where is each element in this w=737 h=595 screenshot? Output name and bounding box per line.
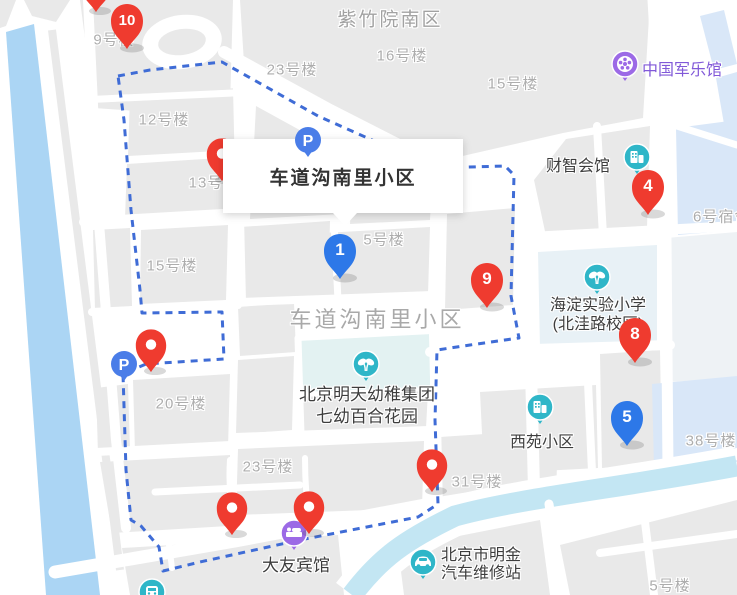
poi-label-hotel[interactable]: 大友宾馆 [262,551,330,576]
area-label: 38号楼 [686,430,737,451]
area-label: 15号楼 [147,255,198,276]
marker-5[interactable]: 5 [605,390,649,448]
bus-icon[interactable] [138,578,166,595]
info-window[interactable]: 车道沟南里小区 [223,139,463,213]
parking-icon[interactable]: P [294,119,322,151]
marker-1[interactable]: 1 [318,223,362,281]
poi-label-line: 北京市明金 [441,547,521,565]
marker-8[interactable]: 8 [613,307,657,365]
poi-label-line: 汽车维修站 [441,565,521,583]
poi-label-line: 七幼百合花园 [299,406,435,428]
poi-label-music-hall[interactable]: 中国军乐馆 [642,56,722,80]
area-label: 5号楼 [363,229,404,250]
red-pin[interactable] [210,479,254,537]
svg-text:1: 1 [335,240,344,259]
area-label: 车道沟南里小区 [289,302,464,334]
area-label: 16号楼 [377,45,428,66]
map-canvas[interactable]: 紫竹院南区 23号楼 16号楼 15号楼 9号楼 12号楼 13号楼 15号楼 … [0,0,737,595]
parking-icon[interactable]: P [110,343,138,375]
car-repair-icon[interactable] [409,548,437,582]
right-mid-block [666,232,737,382]
area-label: 20号楼 [156,393,207,414]
marker-10[interactable]: 10 [105,0,149,51]
svg-text:8: 8 [630,324,639,343]
kindergarten-icon[interactable] [352,350,380,384]
poi-label-residential[interactable]: 西苑小区 [510,428,574,452]
marker-4[interactable]: 4 [626,159,670,217]
svg-text:5: 5 [622,407,631,426]
marker-9[interactable]: 9 [465,252,509,310]
area-label: 5号楼 [649,575,690,595]
area-label: 紫竹院南区 [337,5,442,32]
svg-text:P: P [303,133,314,150]
svg-text:10: 10 [119,12,136,29]
area-label: 23号楼 [243,456,294,477]
poi-label-line: 北京明天幼稚集团 [299,384,435,406]
info-window-tail [333,213,357,226]
svg-text:4: 4 [643,176,653,195]
area-label: 15号楼 [488,73,539,94]
music-hall-icon[interactable] [611,50,639,84]
area-label: 12号楼 [139,109,190,130]
area-label: 23号楼 [267,59,318,80]
svg-text:9: 9 [482,269,491,288]
residential-icon[interactable] [526,393,554,427]
red-pin[interactable] [287,478,331,536]
area-label: 31号楼 [452,471,503,492]
school-icon[interactable] [583,263,611,297]
red-pin[interactable] [410,436,454,494]
area-label: 6号宿舍 [693,206,737,227]
svg-text:P: P [119,357,130,374]
poi-label-car-repair[interactable]: 北京市明金 汽车维修站 [441,547,521,583]
poi-label-club[interactable]: 财智会馆 [546,152,610,176]
poi-label-kindergarten[interactable]: 北京明天幼稚集团 七幼百合花园 [299,384,435,428]
